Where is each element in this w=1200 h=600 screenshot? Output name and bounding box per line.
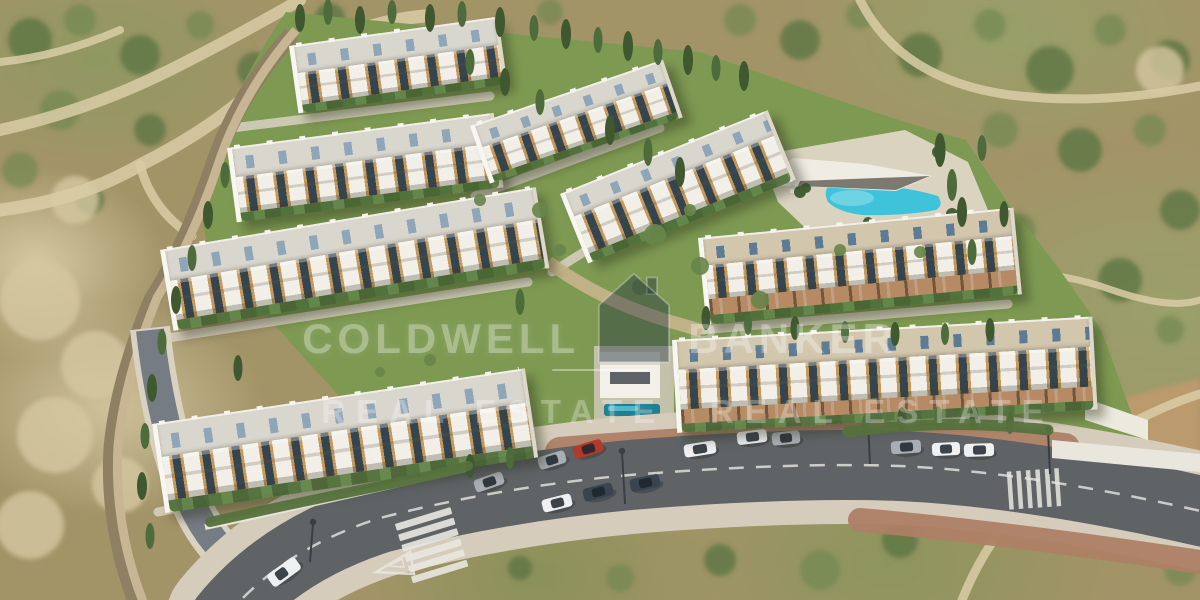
clubhouse-roof <box>765 158 932 191</box>
sun-loungers <box>766 168 799 193</box>
townhouse-row-1 <box>289 17 507 114</box>
townhouse-roof <box>232 113 494 177</box>
watermark-word-coldwell: COLDWELL <box>302 318 580 360</box>
townhouse-roof <box>165 188 537 281</box>
flora-layer <box>0 0 1200 600</box>
townhouse-facade <box>162 402 532 500</box>
parked-car <box>771 430 804 450</box>
townhouse-row-3 <box>470 60 683 184</box>
stone-slope <box>548 262 702 331</box>
pool-area <box>760 130 988 250</box>
hill-vegetation <box>2 0 1200 592</box>
dirt-paths <box>0 0 1200 600</box>
moving-van <box>266 554 307 591</box>
townhouse-row-8 <box>672 316 1098 432</box>
roadside-walls <box>205 398 1200 527</box>
townhouse-roof <box>475 61 667 147</box>
parked-car <box>473 470 510 496</box>
lap-pool <box>604 404 660 416</box>
garage-level <box>681 387 1093 424</box>
townhouse-facade <box>483 84 677 176</box>
terrace-paths <box>158 96 1008 512</box>
landscaping-strip <box>241 179 500 222</box>
landscaping-strip <box>492 112 679 182</box>
parked-car <box>683 440 720 462</box>
townhouse-roof <box>703 208 1012 265</box>
junction-markings <box>376 552 414 574</box>
swimming-pool <box>826 184 941 216</box>
roadside-hedge <box>848 424 1048 432</box>
parked-car <box>537 449 571 474</box>
palm-trees <box>794 146 958 227</box>
townhouse-facade <box>170 219 544 320</box>
perimeter-wall <box>111 30 296 600</box>
development-grounds <box>202 12 1150 502</box>
watermark-tagline-line: REAL ESTATE REAL ESTATE <box>321 395 1054 428</box>
townhouse-row-2 <box>227 113 503 222</box>
main-road <box>225 436 1200 600</box>
coldwell-banker-house-logo-icon <box>596 272 672 364</box>
townhouse-row-4 <box>160 187 549 331</box>
moving-car <box>541 492 577 516</box>
landscaping-strip <box>710 286 1017 324</box>
townhouse-facade <box>236 143 498 213</box>
roadside-hedge <box>210 466 468 522</box>
aerial-development-render: COLDWELL BANKER REAL ESTATE REAL ESTATE <box>0 0 1200 600</box>
landscaping-strip <box>177 259 546 330</box>
townhouse-roof <box>565 112 774 217</box>
townhouse-row-6 <box>152 368 538 513</box>
road-center-dashes <box>225 465 1200 600</box>
townhouse-roof <box>294 17 498 73</box>
watermark-word-banker: BANKER <box>688 318 898 360</box>
garage-level <box>709 270 1017 315</box>
watermark: COLDWELL BANKER REAL ESTATE REAL ESTATE <box>0 272 1200 428</box>
terrain-layer <box>0 0 1200 600</box>
townhouse-row-7 <box>698 208 1022 325</box>
watermark-tagline: REAL ESTATE <box>710 395 1055 428</box>
moving-car <box>582 481 618 505</box>
parked-car <box>736 428 771 448</box>
moving-car <box>629 473 665 496</box>
street-lights <box>310 417 1050 562</box>
parked-car <box>891 439 925 458</box>
townhouse-row-5 <box>560 110 796 263</box>
garden-trees <box>375 194 926 377</box>
landscaping-strip <box>682 401 1094 433</box>
watermark-tagline: REAL ESTATE <box>321 395 666 428</box>
townhouse-roof <box>677 317 1090 370</box>
landscaping-strip <box>589 173 792 262</box>
townhouse-facade <box>679 347 1093 410</box>
townhouse-facade <box>706 236 1016 299</box>
pool-house-block <box>594 346 674 424</box>
townhouse-facade <box>298 45 502 105</box>
crosswalk <box>395 507 469 583</box>
parked-car-red <box>572 438 608 463</box>
hill-rocks <box>0 46 1200 559</box>
landscaping-strip <box>302 77 503 113</box>
crosswalk <box>1007 468 1062 510</box>
cypress-trees <box>137 0 1014 549</box>
parked-car <box>964 443 998 461</box>
watermark-divider <box>552 369 648 371</box>
parked-cars <box>266 428 997 591</box>
townhouse-facade <box>574 136 788 254</box>
parked-car <box>932 442 964 460</box>
internal-road <box>150 328 252 576</box>
townhouse-rows <box>0 0 1200 600</box>
townhouse-roof <box>157 369 526 457</box>
landscaping-strip <box>168 446 534 512</box>
watermark-brand-line: COLDWELL BANKER <box>302 272 898 364</box>
